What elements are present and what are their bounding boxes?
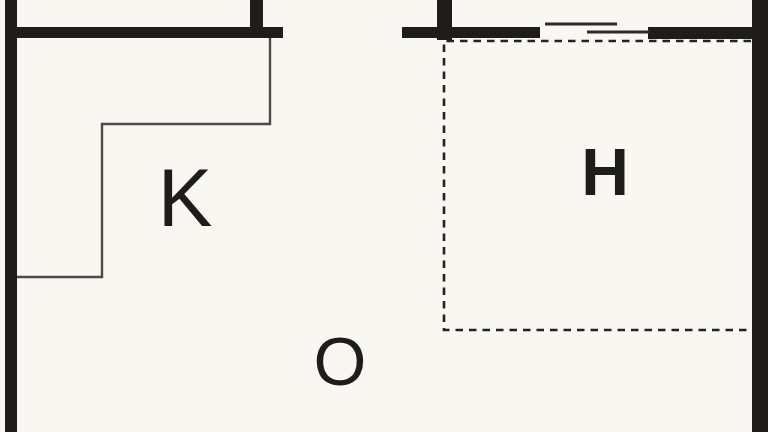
floor-plan-svg: K O H: [0, 0, 768, 432]
wall-top-middle: [402, 27, 540, 38]
floor-plan: K O H: [0, 0, 768, 432]
kitchen-counter-outline: [17, 38, 270, 277]
partition-stub-left: [250, 0, 263, 38]
wall-top-left: [5, 27, 283, 38]
room-label-k: K: [158, 152, 213, 243]
wall-top-right: [648, 27, 752, 39]
room-label-o: O: [314, 323, 367, 399]
wall-right: [752, 0, 768, 432]
room-label-h: H: [581, 135, 629, 209]
wall-left: [5, 0, 17, 432]
partition-stub-right: [437, 0, 452, 40]
